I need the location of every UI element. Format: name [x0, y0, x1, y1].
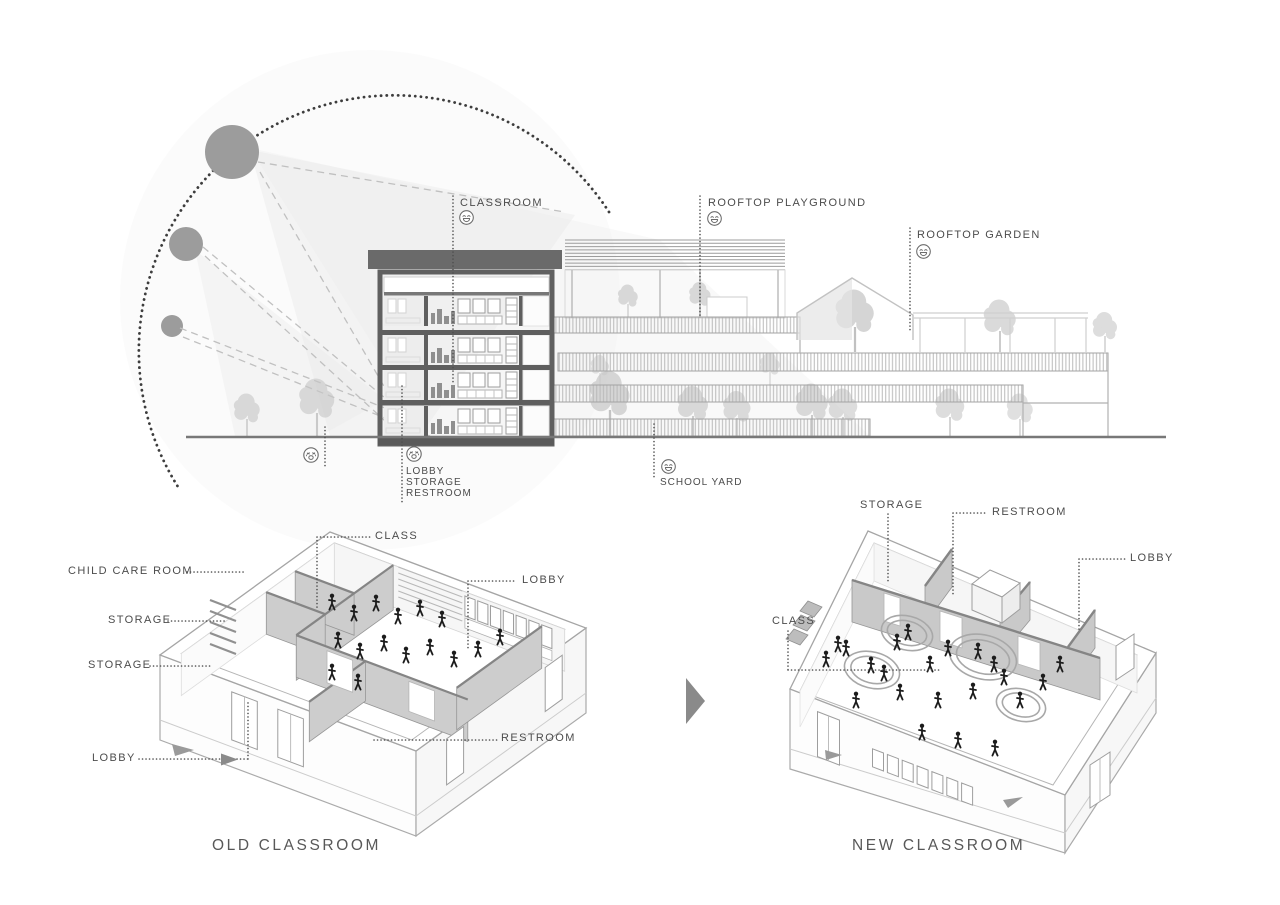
- label-child-care-room: CHILD CARE ROOM: [68, 565, 193, 577]
- label-old-storage-1: STORAGE: [108, 614, 171, 626]
- transition-arrow-icon: [686, 678, 705, 724]
- crying-face-icon: [405, 445, 423, 463]
- label-old-lobby-left: LOBBY: [92, 752, 136, 764]
- new-classroom-axon: [786, 531, 1156, 853]
- sun-icon-small: [161, 315, 183, 337]
- label-classroom: CLASSROOM: [460, 197, 543, 209]
- label-ground-lobby: LOBBY: [406, 467, 444, 478]
- old-classroom-title: OLD CLASSROOM: [212, 837, 381, 855]
- label-old-storage-2: STORAGE: [88, 659, 151, 671]
- sun-icon-medium: [169, 227, 203, 261]
- label-new-storage: STORAGE: [860, 499, 923, 511]
- label-old-lobby-right: LOBBY: [522, 574, 566, 586]
- label-old-class: CLASS: [375, 530, 418, 542]
- label-school-yard: SCHOOL YARD: [660, 478, 743, 489]
- crying-face-icon: [302, 446, 320, 464]
- label-new-class: CLASS: [772, 615, 815, 627]
- label-ground-restroom: RESTROOM: [406, 489, 472, 500]
- label-new-lobby: LOBBY: [1130, 552, 1174, 564]
- grinning-face-icon: [660, 458, 677, 475]
- label-rooftop-garden: ROOFTOP GARDEN: [917, 229, 1041, 241]
- sun-study-section: [120, 50, 1166, 550]
- label-ground-storage: STORAGE: [406, 478, 462, 489]
- grinning-face-icon: [706, 210, 723, 227]
- building-section: [368, 250, 562, 445]
- sun-icon-large: [205, 125, 259, 179]
- architecture-diagram: CLASSROOM ROOFTOP PLAYGROUND ROOFTOP GAR…: [0, 0, 1280, 905]
- label-old-restroom: RESTROOM: [501, 732, 576, 744]
- grinning-face-icon: [458, 209, 475, 226]
- new-classroom-title: NEW CLASSROOM: [852, 837, 1025, 855]
- label-new-restroom: RESTROOM: [992, 506, 1067, 518]
- label-rooftop-playground: ROOFTOP PLAYGROUND: [708, 197, 866, 209]
- diagram-canvas: [0, 0, 1280, 905]
- rooftop-garden-house: [797, 278, 1088, 352]
- grinning-face-icon: [915, 243, 932, 260]
- roof-slab: [368, 250, 562, 269]
